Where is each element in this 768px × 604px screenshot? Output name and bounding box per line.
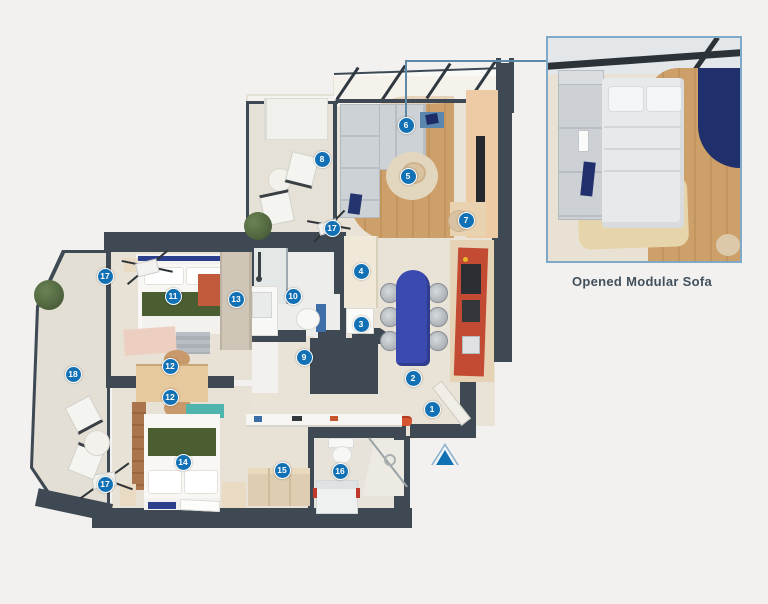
wardrobe (220, 252, 252, 350)
plant (34, 280, 64, 310)
cooktop (461, 264, 481, 294)
inset-fold (604, 170, 682, 172)
ottoman-line (268, 468, 270, 506)
magazine (148, 502, 176, 509)
wall (310, 338, 378, 394)
kitchen-light (463, 257, 468, 262)
inset-fold (604, 126, 682, 128)
inset-caption: Opened Modular Sofa (546, 274, 738, 289)
pillow (184, 470, 218, 494)
dining-chair (428, 283, 448, 303)
inset-pillow (608, 86, 644, 112)
paper (180, 499, 221, 512)
dining-table (396, 270, 430, 366)
console-item-blue (254, 416, 262, 422)
wall (410, 424, 476, 438)
washer-accent (313, 488, 317, 498)
entrance-arrow (436, 450, 454, 465)
pouf (448, 210, 470, 232)
inset-pillow (646, 86, 682, 112)
sink (462, 336, 480, 354)
wall (92, 508, 412, 528)
console-item-dark (292, 416, 302, 421)
inset-remote (578, 130, 589, 152)
inset-sofa (558, 84, 604, 220)
dining-chair (428, 331, 448, 351)
wall (492, 236, 512, 352)
hall9-floor (278, 336, 314, 396)
nightstand2 (222, 482, 246, 508)
pillow (148, 470, 182, 494)
oven (462, 300, 480, 322)
wall (308, 426, 406, 438)
navy-cushion (425, 113, 439, 125)
terracotta-rug (198, 274, 222, 306)
hall-console (246, 414, 402, 427)
inset-pouf (716, 234, 740, 256)
drain (384, 454, 396, 466)
toilet2-bowl (332, 446, 352, 464)
callout-line-horizontal (405, 60, 547, 62)
callout-line-vertical (405, 60, 407, 120)
ottoman (248, 468, 310, 506)
toilet-bowl (296, 308, 320, 330)
coffee-table (402, 162, 426, 184)
dining-chair (428, 307, 448, 327)
wall (104, 232, 346, 252)
dishwasher (346, 308, 374, 334)
washer (316, 480, 358, 514)
balcony-sofa (264, 98, 328, 140)
inset-image (546, 36, 742, 263)
ottoman-line (289, 468, 291, 506)
washer-accent (356, 488, 360, 498)
shared-desk (136, 364, 208, 402)
shower-rod (258, 252, 261, 278)
balcony-table (84, 430, 110, 456)
wall (498, 70, 512, 240)
wall (106, 250, 111, 378)
bed2-blanket (148, 428, 216, 456)
inset-fold (604, 148, 682, 150)
vanity-sink (252, 292, 272, 318)
shower-head (256, 276, 262, 282)
kitchen-island (344, 236, 378, 308)
floorplan: Opened Modular Sofa 12345678910111212131… (0, 0, 768, 604)
console-item-orange (330, 416, 338, 421)
plant (244, 212, 272, 240)
